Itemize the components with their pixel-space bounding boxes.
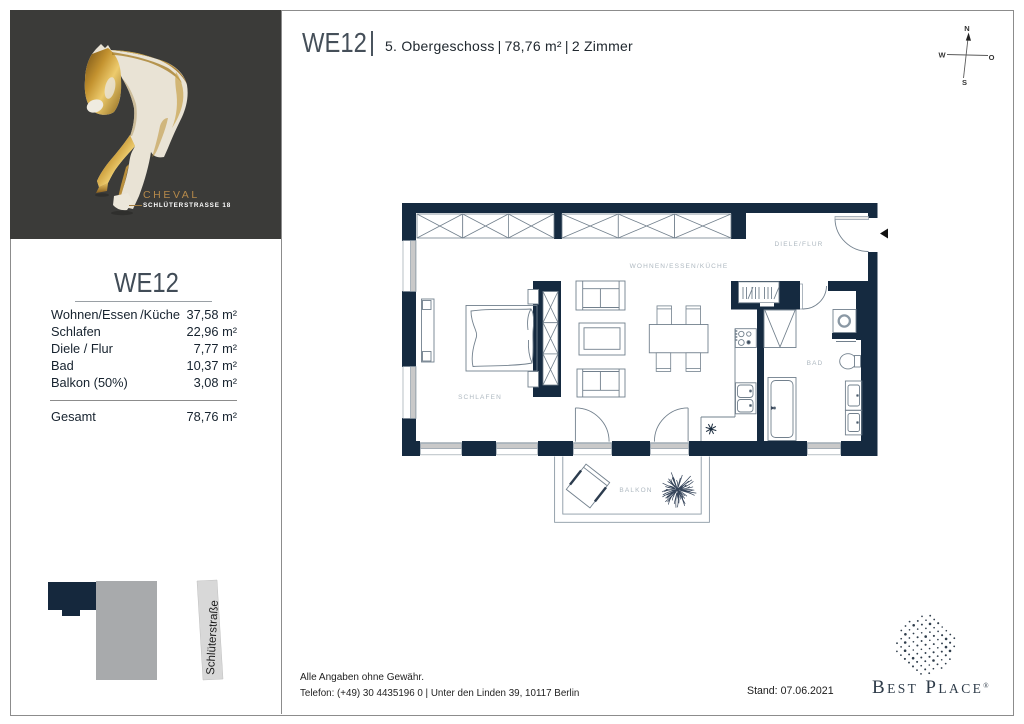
svg-text:BAD: BAD (807, 360, 824, 367)
svg-text:DIELE/FLUR: DIELE/FLUR (774, 241, 823, 248)
svg-text:N: N (964, 24, 969, 33)
svg-text:S: S (962, 78, 967, 87)
svg-text:SCHLAFEN: SCHLAFEN (458, 394, 502, 401)
svg-text:BALKON: BALKON (619, 487, 652, 494)
svg-text:O: O (989, 53, 995, 62)
svg-text:W: W (938, 51, 946, 60)
svg-text:WOHNEN/ESSEN/KÜCHE: WOHNEN/ESSEN/KÜCHE (630, 262, 729, 270)
